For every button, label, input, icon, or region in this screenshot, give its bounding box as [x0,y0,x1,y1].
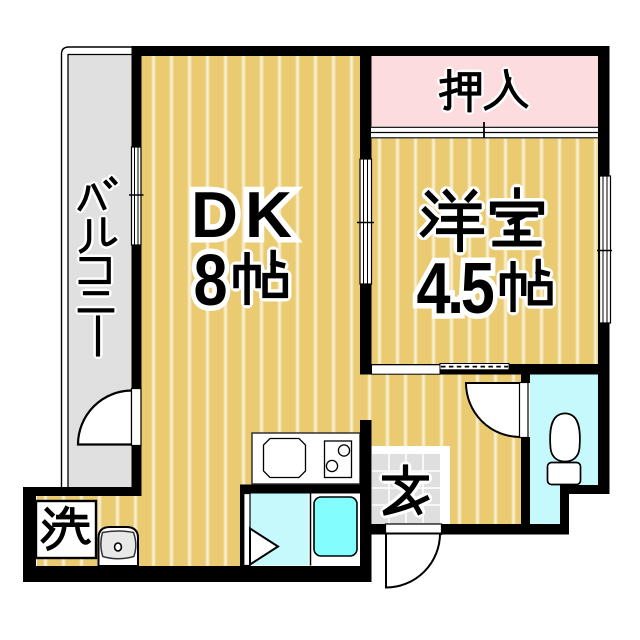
svg-text:DK: DK [191,178,299,251]
svg-text:8: 8 [193,241,227,321]
svg-text:4.5: 4.5 [417,249,494,329]
